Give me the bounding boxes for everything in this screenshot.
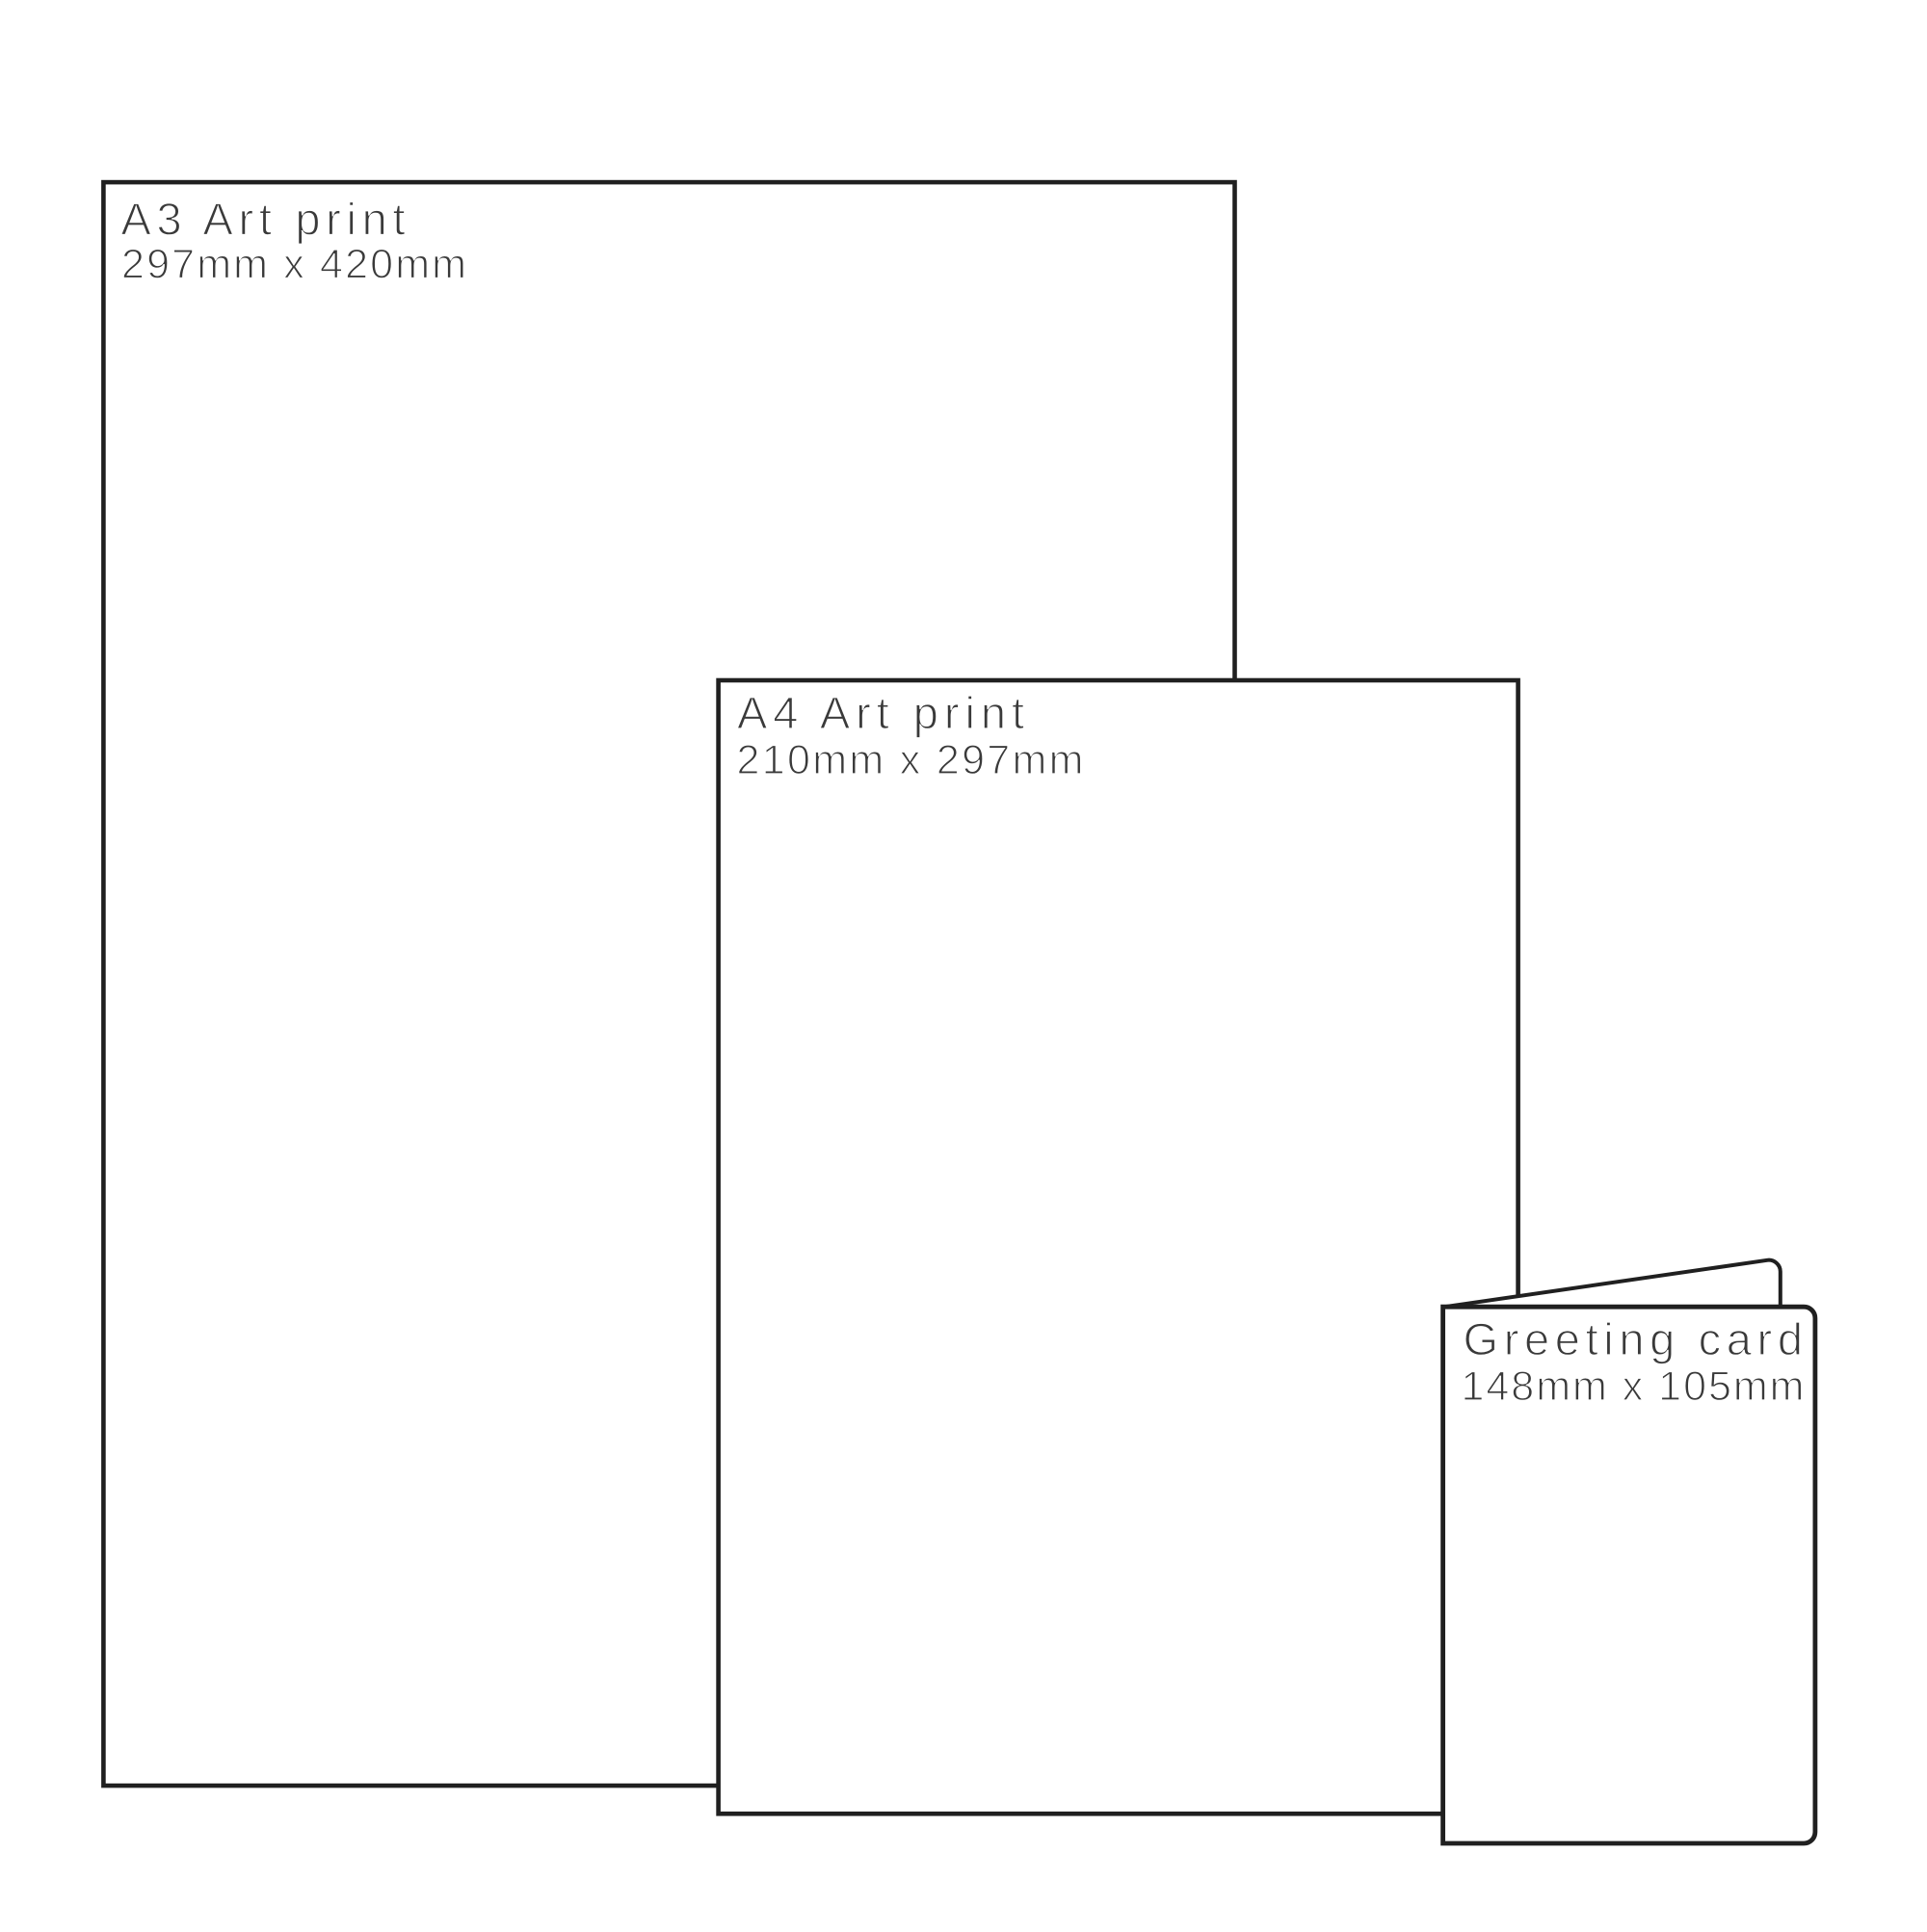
svg-text:210mm x 297mm: 210mm x 297mm (737, 737, 1084, 783)
svg-text:297mm x 420mm: 297mm x 420mm (121, 241, 466, 287)
svg-text:148mm x 105mm: 148mm x 105mm (1462, 1363, 1805, 1410)
svg-text:A4 Art print: A4 Art print (737, 687, 1024, 738)
svg-text:A3 Art print: A3 Art print (121, 193, 406, 244)
